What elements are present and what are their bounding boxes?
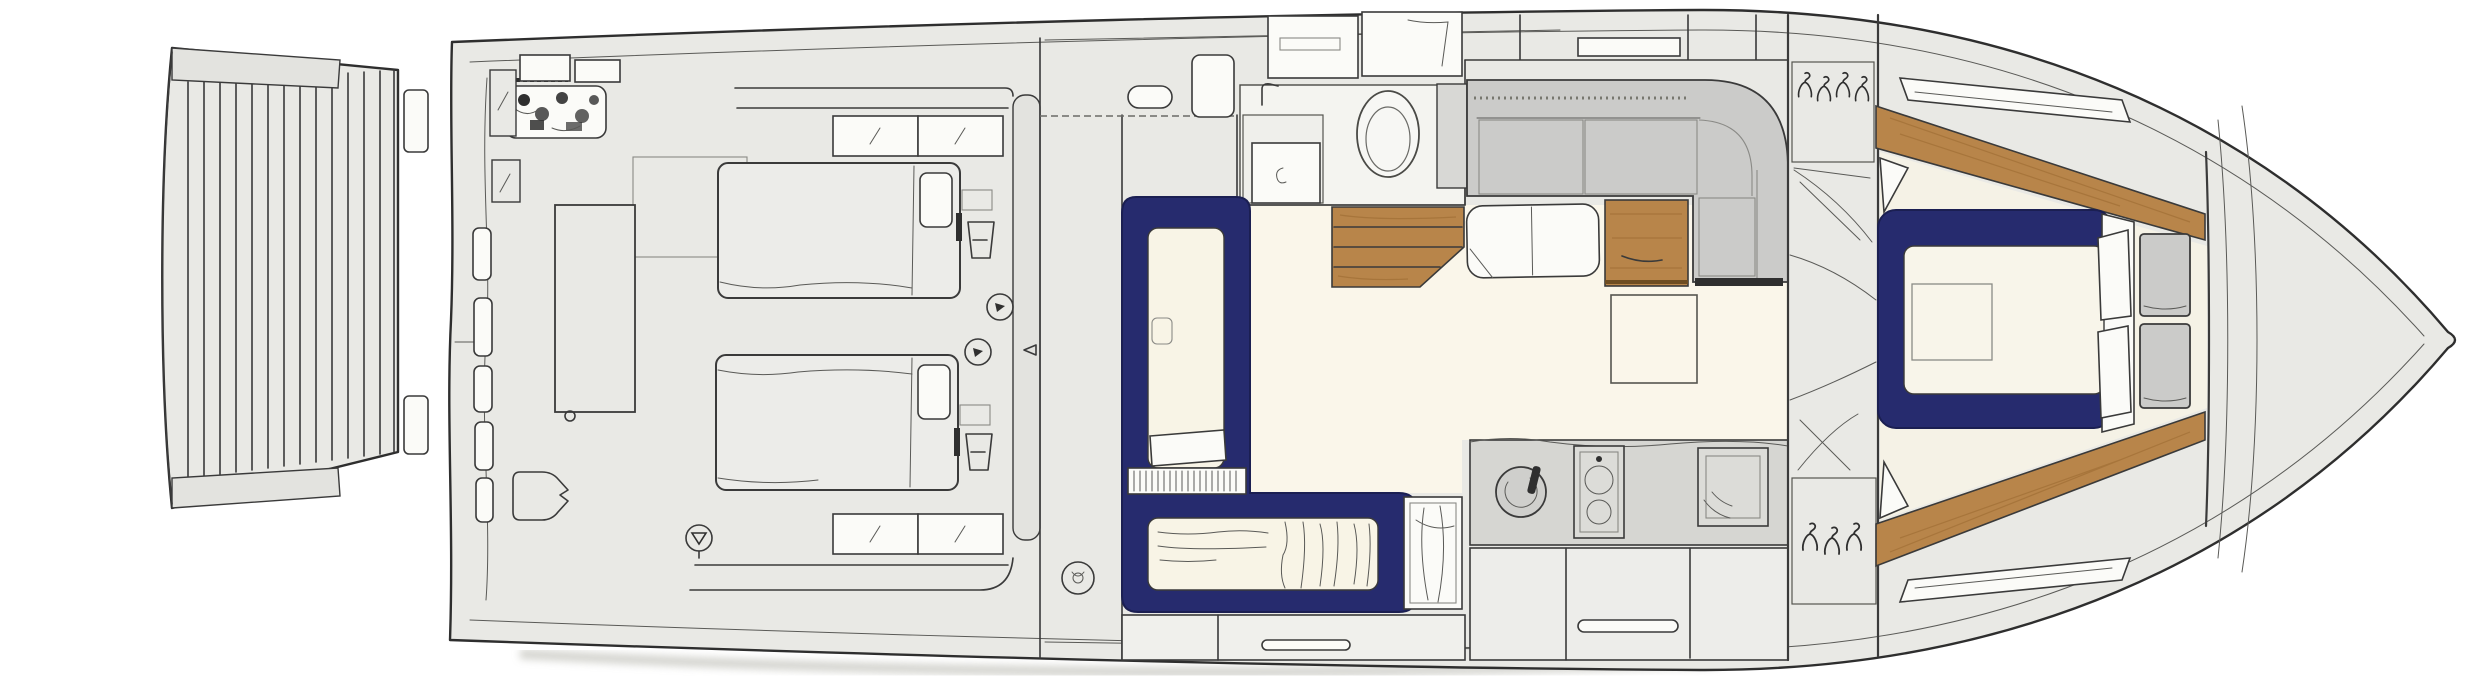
pillow (2098, 326, 2131, 418)
twin-bed-starboard (716, 355, 958, 490)
pillow (920, 173, 952, 227)
sink (1496, 465, 1546, 517)
boarding-step-top (404, 90, 428, 152)
window-boxes-bottom (833, 514, 1003, 554)
equipment-locker (506, 80, 606, 138)
yacht-deck-plan (0, 0, 2480, 680)
slatted-shelf (1128, 468, 1246, 494)
twin-bed-port (718, 163, 960, 298)
head (1237, 12, 1465, 205)
stove (1574, 446, 1624, 538)
mattress (1904, 246, 2104, 394)
tall-table (555, 205, 635, 421)
pillow (918, 365, 950, 419)
drawer-bank (1122, 615, 1465, 660)
sofa-base-shadow (1695, 278, 1783, 286)
headboard-console (1013, 95, 1040, 540)
overhead-cabinet (1268, 16, 1358, 78)
double-bed-navy (1878, 210, 2134, 432)
bench-pill (1128, 86, 1172, 108)
berth-pillow (1150, 430, 1226, 466)
drawer-handle (1578, 620, 1678, 632)
cabinet-bank (1470, 548, 1788, 660)
sofa-end-panel (1437, 84, 1467, 188)
swim-platform (162, 48, 398, 508)
wood-cabinet (1605, 200, 1688, 286)
storage-locker (520, 55, 570, 81)
pillow (2098, 230, 2131, 320)
transom (404, 90, 428, 454)
side-table (1192, 55, 1234, 117)
storage-lockers-left (490, 70, 520, 202)
horizontal-berth (1148, 518, 1378, 590)
oven (1698, 448, 1768, 526)
bench-seat (1466, 204, 1599, 278)
boarding-step-bottom (404, 396, 428, 454)
side-window (1578, 38, 1680, 56)
galley (1470, 439, 1788, 661)
window-boxes-top (833, 116, 1003, 156)
toilet (1357, 91, 1419, 177)
shower-cabin (1404, 497, 1462, 609)
drawer-handle (1262, 640, 1350, 650)
floor-plan (0, 0, 2480, 680)
swim-platform-deck (162, 48, 398, 508)
storage-locker (575, 60, 620, 82)
